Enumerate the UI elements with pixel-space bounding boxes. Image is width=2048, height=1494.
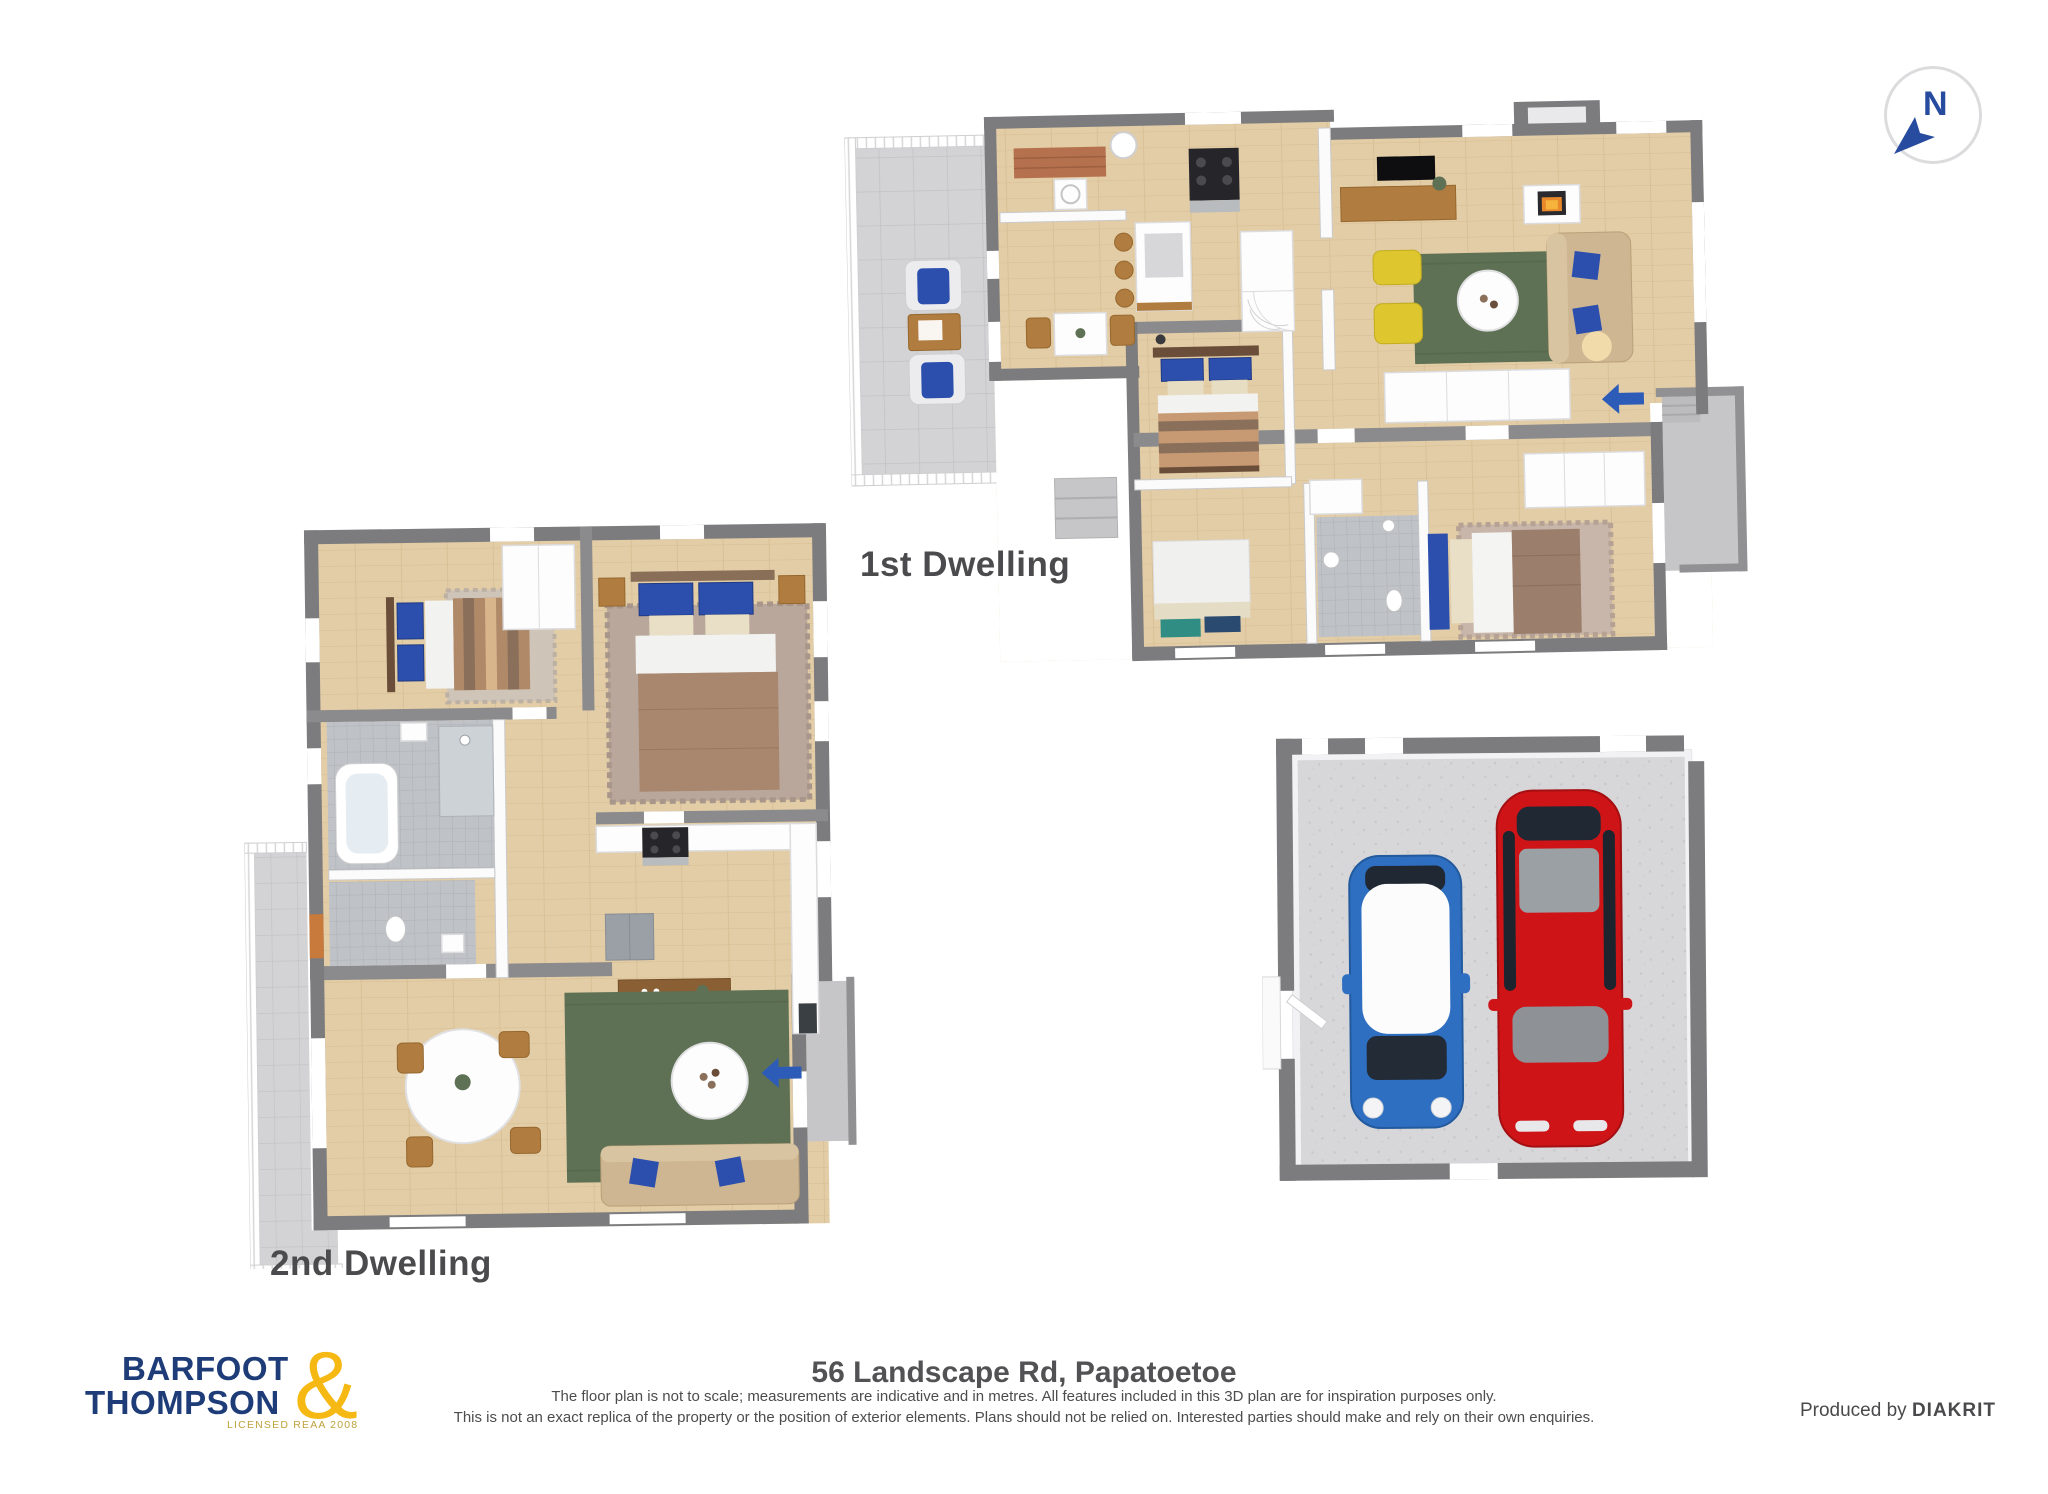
hall-wardrobe [1384,369,1570,423]
chair [1026,318,1051,348]
headlight [1431,1097,1451,1117]
compass-rose: N [1884,66,1982,164]
chair [406,1137,432,1167]
basin [442,934,464,952]
wc [329,880,476,966]
teal-pillows [1160,619,1200,638]
second-dwelling-label: 2nd Dwelling [270,1244,492,1284]
toilet [1110,132,1137,159]
armchair [1374,303,1423,344]
chair [397,1043,423,1073]
stool [1114,233,1132,251]
mirror [1616,998,1632,1010]
entry-porch [1656,386,1748,573]
pillows [1450,539,1474,623]
sunroof [1519,848,1600,913]
disclaimer-line2: This is not an exact replica of the prop… [0,1409,2048,1426]
first-dwelling-plan [843,70,1806,740]
duvet [1512,529,1582,634]
producer-name: DIAKRIT [1912,1400,1996,1421]
exterior-steps [1054,477,1117,538]
side-door-landing [1262,977,1281,1069]
headlight [1573,1120,1607,1131]
white-roof [1361,883,1450,1034]
shower [1310,479,1363,514]
bedroom-middle [1152,332,1261,473]
tv [1377,156,1435,181]
bedroom-two [599,569,810,802]
red-car [1486,790,1633,1147]
coffee-table [671,1042,748,1119]
cushion [715,1156,745,1186]
mirror [1342,974,1354,994]
garage-plan [1260,725,1724,1219]
chair [499,1031,529,1057]
sink [799,1003,817,1033]
vanity [401,723,427,741]
produced-by-prefix: Produced by [1800,1400,1912,1421]
toilet [1386,589,1402,611]
cushion [1572,305,1602,335]
second-dwelling-plan [240,511,860,1269]
armchair [1373,250,1422,285]
coffee-table [1457,270,1518,331]
chair [1110,315,1135,345]
cooktop [642,827,688,858]
balcony-chairs [905,260,966,405]
mirror [1458,973,1470,993]
orange-window [309,914,324,958]
mirror [1488,999,1504,1011]
oven [1189,148,1240,201]
toilet [385,916,405,942]
nightstand [599,578,625,606]
nightstand [779,575,805,603]
tv-cabinet [1340,185,1456,221]
windshield [1512,1006,1608,1063]
disclaimer-line1: The floor plan is not to scale; measurem… [0,1388,2048,1405]
property-address: 56 Landscape Rd, Papatoetoe [0,1356,2048,1390]
floorplan-page: N [0,0,2048,1494]
chair [510,1127,540,1153]
washing-machine [1054,179,1087,210]
garage-structure [1260,735,1708,1181]
first-dwelling-label: 1st Dwelling [860,545,1070,585]
headlight [1515,1121,1549,1132]
headlight [1363,1098,1383,1118]
stool [1115,261,1133,279]
blue-throw [1428,533,1450,629]
cushion [1572,251,1601,280]
stool [1116,289,1134,307]
wardrobe [1524,451,1645,508]
basin [1323,552,1339,568]
shower-head [1382,520,1394,532]
blue-car [1341,855,1471,1128]
bathroom [327,720,495,870]
cushion [629,1158,659,1188]
produced-by: Produced by DIAKRIT [1800,1400,1996,1422]
compass-arrow-icon [1891,111,1937,157]
